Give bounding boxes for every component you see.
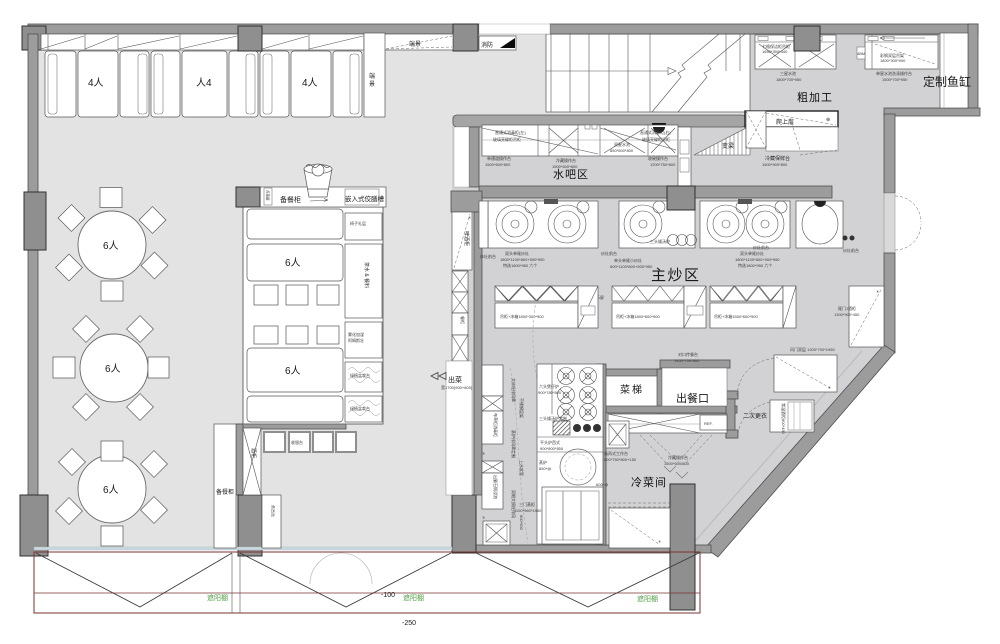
- svg-text:1100*960*1950: 1100*960*1950: [514, 508, 542, 513]
- svg-text:双头单尾炒灶: 双头单尾炒灶: [740, 250, 764, 256]
- svg-text:1650*350*440: 1650*350*440: [762, 49, 788, 54]
- svg-text:4人: 4人: [302, 77, 318, 89]
- svg-text:1200*750*800: 1200*750*800: [650, 162, 676, 167]
- svg-text:4BM: 4BM: [857, 51, 865, 56]
- svg-text:大炒灶排风罩: 大炒灶排风罩: [511, 378, 517, 402]
- svg-text:900*780*800: 900*780*800: [538, 390, 562, 395]
- svg-text:双头单尾炒灶: 双头单尾炒灶: [505, 250, 529, 256]
- svg-text:粗加工: 粗加工: [797, 91, 833, 104]
- svg-text:1500*700*950: 1500*700*950: [882, 77, 908, 82]
- svg-text:直通式消毒柜(左): 直通式消毒柜(左): [495, 129, 526, 135]
- svg-text:冷藏保鲜台: 冷藏保鲜台: [765, 155, 790, 162]
- svg-text:1800*1100*800+500*950: 1800*1100*800+500*950: [500, 257, 545, 262]
- svg-text:特选1800*950 六个: 特选1800*950 六个: [503, 262, 537, 268]
- svg-text:850*600*800: 850*600*800: [610, 148, 634, 153]
- svg-text:遮阳棚: 遮阳棚: [637, 594, 658, 603]
- svg-text:-100: -100: [381, 592, 395, 599]
- svg-text:-250: -250: [402, 620, 416, 627]
- svg-text:双星水池: 双星水池: [614, 141, 630, 147]
- svg-text:吊柜+冰箱1800*600*900: 吊柜+冰箱1800*600*900: [616, 313, 660, 319]
- svg-text:1500*900*800: 1500*900*800: [762, 162, 788, 167]
- svg-text:1500*600/800: 1500*600/800: [664, 461, 690, 466]
- svg-text:850*@: 850*@: [539, 466, 551, 471]
- svg-text:吊柜+冰箱1500*600*900: 吊柜+冰箱1500*600*900: [714, 313, 758, 319]
- svg-text:备餐柜: 备餐柜: [280, 195, 301, 204]
- svg-text:水吧区: 水吧区: [553, 168, 589, 181]
- svg-text:6人: 6人: [285, 365, 301, 377]
- svg-text:玻璃亮碟柜吊柜: 玻璃亮碟柜吊柜: [642, 136, 670, 142]
- svg-text:六头煲仔炉: 六头煲仔炉: [539, 383, 559, 389]
- svg-text:主炒区: 主炒区: [651, 267, 701, 284]
- svg-text:雾化加湿: 雾化加湿: [348, 331, 364, 337]
- svg-text:务员台: 务员台: [271, 505, 277, 517]
- svg-text:端景: 端景: [409, 40, 421, 48]
- svg-text:炒灶前台: 炒灶前台: [480, 253, 496, 259]
- svg-text:布草柜消毒柜: 布草柜消毒柜: [493, 413, 499, 437]
- svg-text:1800*700*950: 1800*700*950: [776, 77, 802, 82]
- svg-text:常温酒柜800*450: 常温酒柜800*450: [781, 403, 787, 435]
- svg-text:6人: 6人: [285, 257, 301, 269]
- svg-text:对口传餐台: 对口传餐台: [678, 351, 698, 357]
- svg-text:绿植盆栽台: 绿植盆栽台: [350, 405, 370, 411]
- svg-text:三门蒸柜: 三门蒸柜: [519, 501, 535, 507]
- svg-text:收碗操作台: 收碗操作台: [648, 155, 668, 161]
- svg-text:二次更衣: 二次更衣: [743, 412, 767, 420]
- svg-text:尾门J酒柜: 尾门J酒柜: [838, 305, 856, 311]
- svg-text:茶水 & 餐料: 茶水 & 餐料: [363, 262, 370, 288]
- svg-text:阿姆斯壮: 阿姆斯壮: [348, 337, 364, 343]
- svg-text:宽1700(900+800): 宽1700(900+800): [441, 384, 473, 390]
- svg-text:600*@: 600*@: [596, 482, 608, 487]
- svg-text:三头矮汤炉: 三头矮汤炉: [650, 238, 670, 244]
- svg-text:1800*1100*800+500*950: 1800*1100*800+500*950: [735, 257, 780, 262]
- svg-text:餐柜: 餐柜: [460, 316, 466, 324]
- svg-text:端: 端: [369, 72, 375, 80]
- svg-text:收银台: 收银台: [291, 439, 303, 445]
- svg-text:REF.: REF.: [704, 421, 713, 426]
- svg-text:特选1800*950 六个: 特选1800*950 六个: [738, 262, 772, 268]
- svg-text:蒸炉排风罩定制: 蒸炉排风罩定制: [511, 430, 517, 458]
- svg-text:啤酒柜: 啤酒柜: [463, 231, 470, 246]
- svg-text:吸再式工作台: 吸再式工作台: [604, 450, 628, 456]
- svg-text:椅子礼层: 椅子礼层: [350, 220, 366, 226]
- svg-text:上水软管: 上水软管: [519, 460, 525, 476]
- svg-text:⊛: ⊛: [826, 117, 830, 123]
- svg-text:爬上层: 爬上层: [776, 118, 794, 126]
- svg-text:出餐口: 出餐口: [676, 391, 709, 405]
- svg-text:1400*700*800: 1400*700*800: [674, 358, 700, 363]
- svg-text:备餐柜: 备餐柜: [216, 488, 234, 496]
- svg-text:4人: 4人: [88, 77, 104, 89]
- svg-text:双眼大锅灶排风: 双眼大锅灶排风: [511, 490, 517, 518]
- svg-text:6人: 6人: [105, 363, 121, 375]
- svg-text:景: 景: [369, 81, 375, 88]
- svg-text:遮阳棚: 遮阳棚: [207, 593, 228, 602]
- svg-text:900*800*850: 900*800*850: [540, 446, 564, 451]
- svg-text:变梁: 变梁: [722, 142, 734, 150]
- svg-text:三头矮汤炉定制: 三头矮汤炉定制: [539, 415, 567, 421]
- svg-text:炒灶前台: 炒灶前台: [753, 244, 769, 250]
- svg-text:1300*900*450: 1300*900*450: [834, 312, 860, 317]
- svg-text:遮阳棚: 遮阳棚: [403, 593, 424, 602]
- svg-text:单头单尾小炒灶: 单头单尾小炒灶: [614, 257, 642, 263]
- svg-text:不锈钢层架: 不锈钢层架: [519, 398, 525, 418]
- svg-text:玻璃亮碟柜吊柜: 玻璃亮碟柜吊柜: [493, 136, 521, 142]
- svg-text:平头炉西式: 平头炉西式: [540, 439, 560, 445]
- svg-text:嵌入式佼膳槽: 嵌入式佼膳槽: [345, 194, 385, 203]
- svg-text:1500*600*800: 1500*600*800: [485, 162, 511, 167]
- svg-text:炒灶前台: 炒灶前台: [601, 250, 617, 256]
- svg-text:600*500: 600*500: [519, 515, 524, 531]
- svg-text:酒柜: 酒柜: [250, 448, 257, 458]
- svg-text:三星水池: 三星水池: [780, 70, 796, 76]
- svg-text:绿植盆栽台: 绿植盆栽台: [350, 372, 370, 378]
- svg-text:单通道操作台: 单通道操作台: [487, 155, 511, 161]
- svg-text:出腿石锅浸泡: 出腿石锅浸泡: [493, 475, 499, 499]
- svg-text:6人: 6人: [103, 484, 119, 496]
- svg-text:冷藏操作台: 冷藏操作台: [556, 157, 576, 163]
- svg-text:炒灶前台: 炒灶前台: [843, 247, 859, 253]
- svg-text:600*1100*800+500*950: 600*1100*800+500*950: [610, 264, 653, 269]
- svg-text:6人: 6人: [103, 240, 119, 252]
- svg-text:直通式消毒柜(右): 直通式消毒柜(右): [640, 129, 671, 135]
- svg-text:人4: 人4: [196, 77, 212, 89]
- svg-text:菜梯: 菜梯: [620, 383, 644, 396]
- svg-text:单星水池洗涤操作台: 单星水池洗涤操作台: [876, 70, 912, 76]
- svg-text:点菜屏: 点菜屏: [266, 190, 271, 201]
- svg-text:定制鱼缸: 定制鱼缸: [923, 74, 971, 89]
- svg-text:冷菜间: 冷菜间: [631, 476, 667, 489]
- svg-text:冷藏操作台: 冷藏操作台: [668, 454, 688, 460]
- svg-text:蒸炉: 蒸炉: [539, 459, 547, 465]
- svg-text:风门双层 1200*700*1950: 风门双层 1200*700*1950: [790, 346, 835, 352]
- svg-text:1800*300*900: 1800*300*900: [880, 58, 906, 63]
- svg-text:出菜: 出菜: [448, 375, 462, 384]
- svg-text:吊柜+冰箱1800*300*900: 吊柜+冰箱1800*300*900: [500, 313, 544, 319]
- svg-text:600*750*800+150: 600*750*800+150: [604, 457, 637, 462]
- svg-text:消防: 消防: [481, 41, 493, 49]
